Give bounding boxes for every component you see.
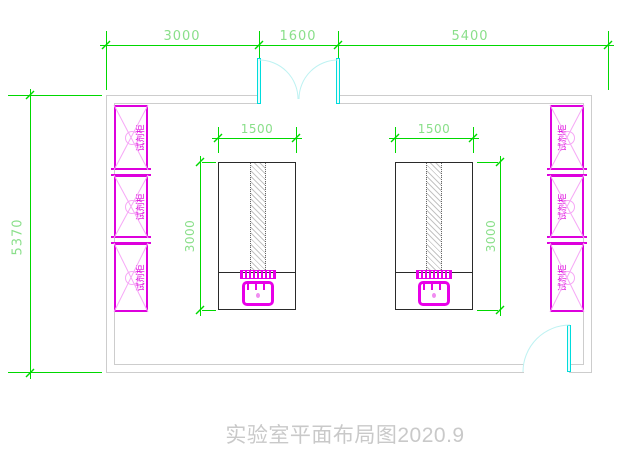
- cabinet-separator: [547, 236, 587, 244]
- left-sink-drain-icon: [256, 293, 260, 298]
- double-door-right-leaf: [336, 58, 340, 104]
- cabinet-knob-circle: [125, 200, 139, 214]
- left-sink-drain-rack: [240, 270, 276, 279]
- cabinet-knob-circle: [561, 200, 575, 214]
- extension-line: [338, 31, 339, 58]
- dim-label-1600: 1600: [279, 29, 316, 44]
- extension-line: [202, 310, 216, 311]
- right-sink-drain-rack: [416, 270, 452, 279]
- extension-line: [106, 31, 107, 90]
- dim-label-5400: 5400: [451, 29, 488, 44]
- extension-line: [608, 31, 609, 90]
- dim-label-3000: 3000: [163, 29, 200, 44]
- double-door-left-leaf: [257, 58, 261, 104]
- bottom-door-leaf: [567, 325, 571, 372]
- dim-label-left-bench-depth: 3000: [183, 220, 197, 253]
- left-bench-depth-dimension-line: [200, 156, 201, 316]
- top-dimension-line: [100, 45, 614, 46]
- drawing-title: 实验室平面布局图2020.9: [225, 419, 464, 449]
- room-height-dimension-line: [30, 89, 31, 379]
- left-bench-width-dimension-line: [212, 138, 302, 139]
- right-sink-drain-icon: [432, 293, 436, 298]
- dim-label-right-bench-width: 1500: [418, 122, 451, 136]
- extension-line: [395, 127, 396, 153]
- cabinet-knob-circle: [125, 131, 139, 145]
- extension-line: [477, 162, 498, 163]
- cabinet-separator: [111, 168, 151, 176]
- extension-line: [8, 372, 102, 373]
- cabinet-knob-circle: [561, 131, 575, 145]
- left-bench-reagent-strip: [250, 163, 266, 272]
- top-door-opening: [260, 93, 337, 105]
- dim-label-right-bench-depth: 3000: [484, 220, 498, 253]
- extension-line: [477, 310, 498, 311]
- cabinet-separator: [111, 236, 151, 244]
- dim-label-5370: 5370: [11, 218, 26, 255]
- extension-line: [8, 95, 102, 96]
- right-bench-width-dimension-line: [389, 138, 479, 139]
- right-sink-faucet-icon: [423, 283, 445, 290]
- floor-plan-canvas: 3000 1600 5400 5370 1500 3000 1500 3000 …: [0, 0, 619, 469]
- cabinet-knob-circle: [561, 271, 575, 285]
- extension-line: [259, 31, 260, 58]
- dim-label-left-bench-width: 1500: [241, 122, 274, 136]
- right-bench-reagent-strip: [426, 163, 442, 272]
- cabinet-knob-circle: [125, 271, 139, 285]
- cabinet-separator: [547, 168, 587, 176]
- extension-line: [473, 127, 474, 153]
- extension-line: [296, 127, 297, 153]
- extension-line: [218, 127, 219, 153]
- extension-line: [202, 162, 216, 163]
- right-bench-depth-dimension-line: [500, 156, 501, 316]
- left-sink-faucet-icon: [247, 283, 269, 290]
- bottom-door-opening: [524, 363, 569, 375]
